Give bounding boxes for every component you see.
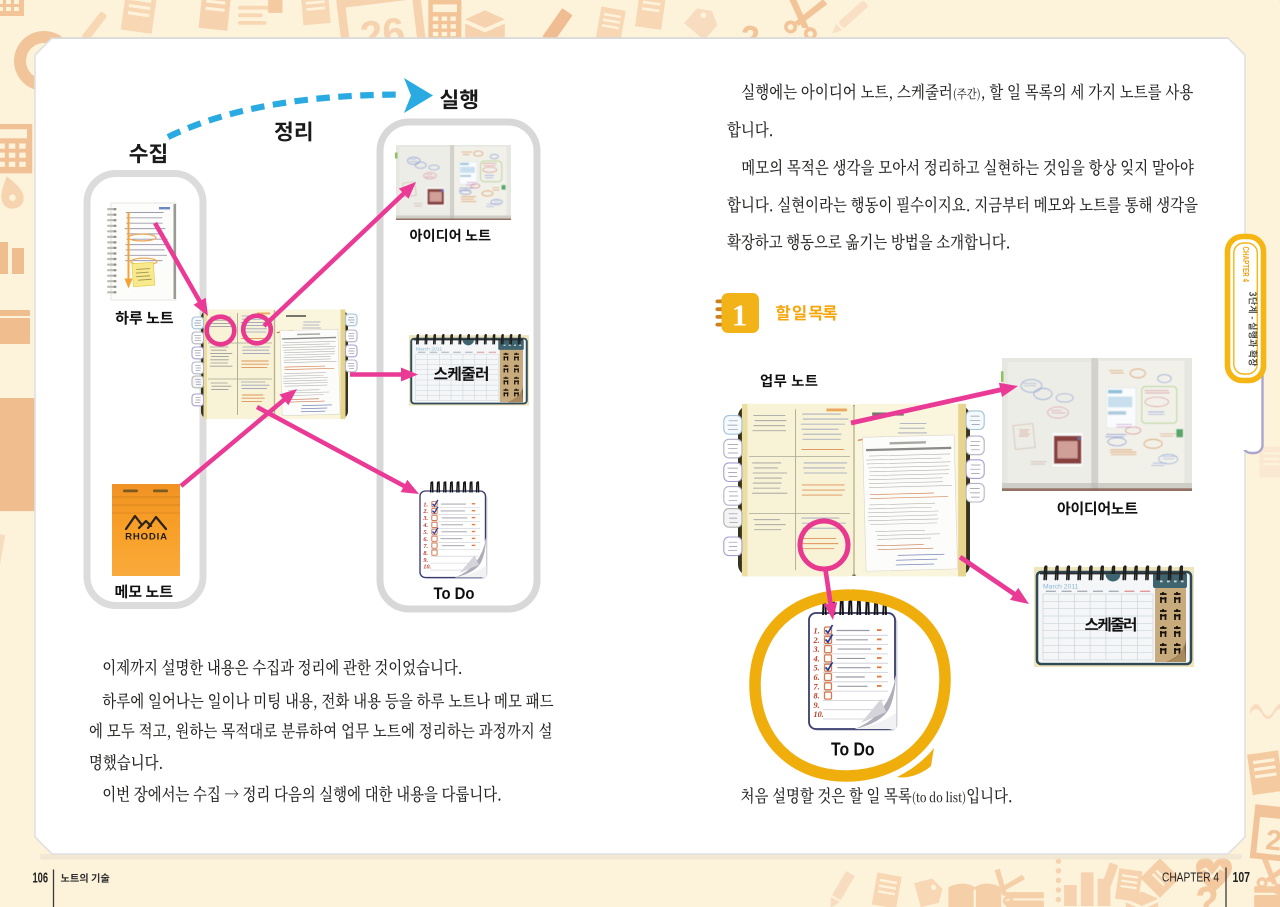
svg-text:10.: 10. xyxy=(814,710,824,719)
svg-text:2.: 2. xyxy=(813,636,820,645)
svg-text:To Do: To Do xyxy=(831,739,875,760)
svg-text:7.: 7. xyxy=(423,544,428,550)
svg-text:8.: 8. xyxy=(423,551,428,557)
svg-text:To Do: To Do xyxy=(434,584,475,603)
svg-text:106: 106 xyxy=(33,871,49,887)
svg-text:107: 107 xyxy=(1233,870,1251,886)
svg-text:9.: 9. xyxy=(814,701,820,710)
svg-text:9.: 9. xyxy=(423,558,428,564)
svg-text:4.: 4. xyxy=(422,523,428,529)
svg-text:5.: 5. xyxy=(423,530,428,536)
svg-text:March 2011: March 2011 xyxy=(416,346,443,352)
svg-text:4.: 4. xyxy=(813,654,820,663)
svg-text:1.: 1. xyxy=(814,627,820,636)
svg-text:3.: 3. xyxy=(813,645,820,654)
svg-text:1.: 1. xyxy=(423,502,428,508)
svg-text:March 2011: March 2011 xyxy=(1043,584,1079,591)
svg-text:6.: 6. xyxy=(814,673,820,682)
svg-text:6.: 6. xyxy=(423,537,428,543)
svg-text:RHODIA: RHODIA xyxy=(125,532,168,543)
svg-text:CHAPTER 4: CHAPTER 4 xyxy=(1241,247,1251,283)
svg-text:1: 1 xyxy=(732,298,748,333)
svg-text:8.: 8. xyxy=(814,692,820,701)
svg-text:5.: 5. xyxy=(814,664,820,673)
svg-text:10.: 10. xyxy=(423,565,431,571)
svg-text:CHAPTER 4: CHAPTER 4 xyxy=(1162,870,1219,885)
svg-text:2.: 2. xyxy=(422,509,428,515)
svg-text:3.: 3. xyxy=(422,516,428,522)
svg-text:7.: 7. xyxy=(814,682,820,691)
